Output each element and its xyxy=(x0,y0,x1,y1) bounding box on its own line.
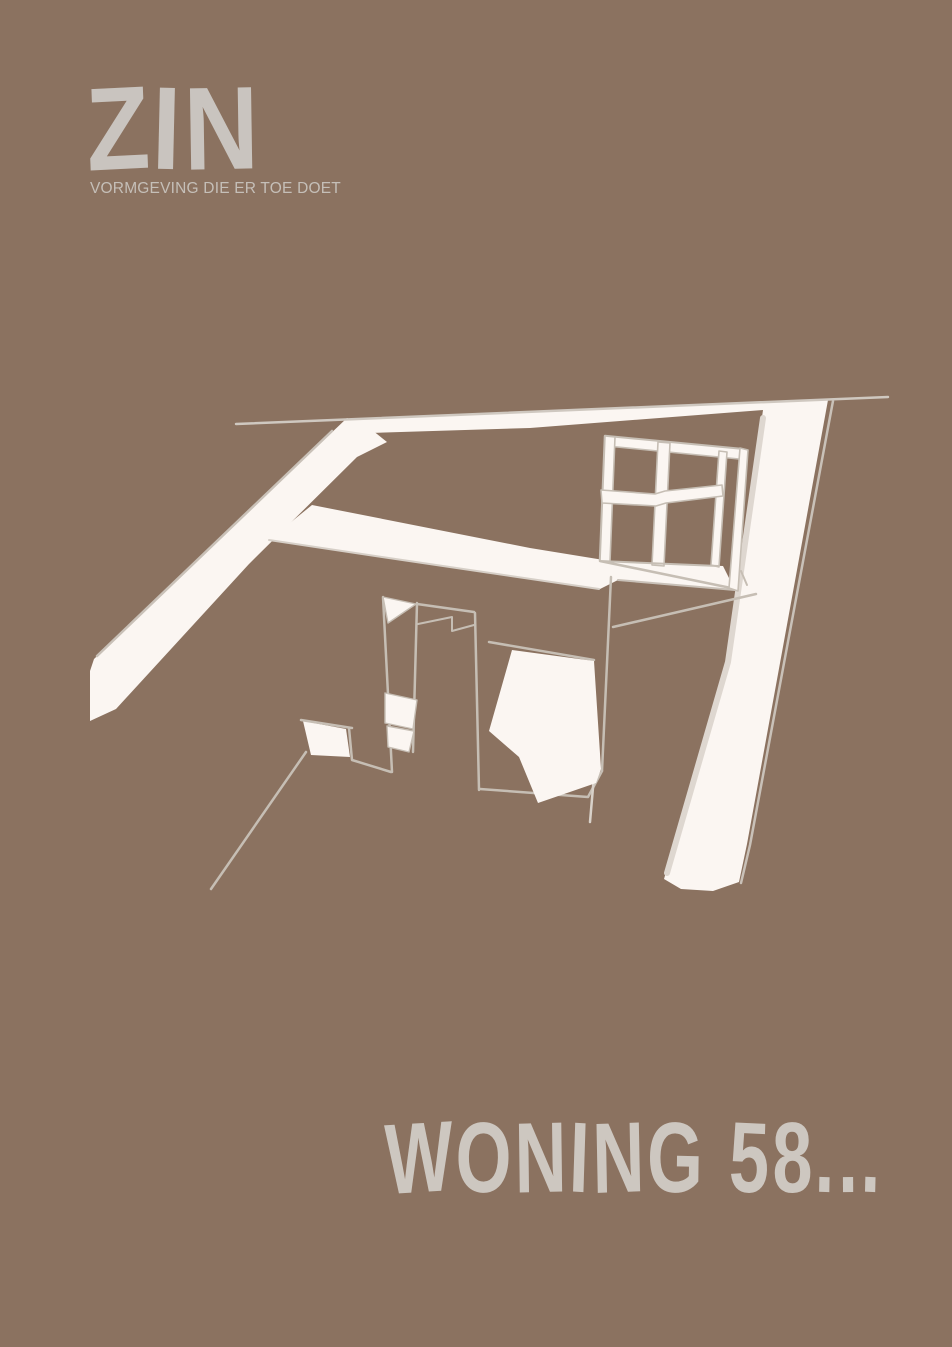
sketch-left-beam xyxy=(90,418,387,721)
sketch-door-lintel xyxy=(417,604,474,612)
sketch-door-lintel-step xyxy=(418,617,474,631)
sketch-step-side-line xyxy=(349,728,391,772)
sketch-light-patch xyxy=(489,650,601,803)
sketch-door-jamb-right xyxy=(475,613,479,790)
sketch-pillar-edge xyxy=(602,577,611,771)
sketch-door-jamb-inner xyxy=(413,603,417,752)
poster-page: ZIN VORMGEVING DIE ER TOE DOET xyxy=(0,0,952,1347)
sketch-floor-line xyxy=(211,752,306,889)
project-title: WONING 58... xyxy=(385,1108,884,1208)
